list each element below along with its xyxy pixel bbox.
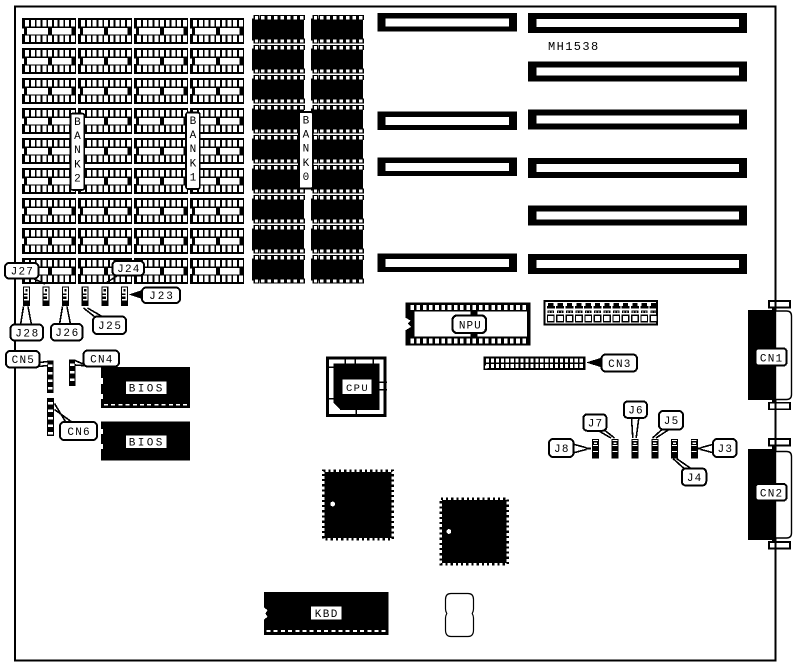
svg-text:A: A bbox=[190, 130, 197, 142]
svg-text:KBD: KBD bbox=[315, 609, 339, 621]
svg-text:J28: J28 bbox=[15, 328, 40, 340]
svg-text:J24: J24 bbox=[117, 264, 140, 276]
svg-text:CN5: CN5 bbox=[12, 355, 35, 367]
svg-text:CPU: CPU bbox=[346, 383, 369, 395]
svg-text:B: B bbox=[303, 115, 310, 127]
svg-text:N: N bbox=[74, 145, 81, 157]
svg-text:CN3: CN3 bbox=[608, 359, 631, 371]
svg-text:J5: J5 bbox=[664, 416, 680, 428]
svg-text:B: B bbox=[74, 117, 81, 129]
svg-text:CN1: CN1 bbox=[760, 354, 783, 366]
svg-text:J3: J3 bbox=[718, 444, 734, 456]
svg-text:J4: J4 bbox=[687, 473, 703, 485]
svg-text:NPU: NPU bbox=[459, 321, 482, 333]
svg-text:MH1538: MH1538 bbox=[548, 40, 600, 54]
svg-text:K: K bbox=[190, 158, 197, 170]
svg-text:J25: J25 bbox=[98, 321, 123, 333]
svg-text:J6: J6 bbox=[628, 405, 644, 417]
svg-text:BIOS: BIOS bbox=[129, 384, 165, 396]
svg-text:CN4: CN4 bbox=[90, 354, 113, 366]
svg-text:BIOS: BIOS bbox=[129, 438, 165, 450]
svg-text:J23: J23 bbox=[149, 291, 175, 303]
svg-text:A: A bbox=[303, 130, 310, 142]
svg-text:K: K bbox=[303, 158, 310, 170]
svg-text:J7: J7 bbox=[588, 418, 604, 430]
svg-text:J27: J27 bbox=[11, 267, 34, 279]
svg-text:CN6: CN6 bbox=[67, 427, 90, 439]
svg-text:1: 1 bbox=[190, 173, 197, 185]
svg-text:0: 0 bbox=[303, 172, 310, 184]
svg-text:CN2: CN2 bbox=[760, 489, 783, 501]
svg-text:B: B bbox=[190, 116, 197, 128]
svg-text:J26: J26 bbox=[55, 328, 80, 340]
svg-text:2: 2 bbox=[74, 174, 81, 186]
svg-text:N: N bbox=[303, 144, 310, 156]
svg-text:N: N bbox=[190, 144, 197, 156]
svg-text:A: A bbox=[74, 131, 81, 143]
svg-text:J8: J8 bbox=[554, 444, 570, 456]
svg-text:K: K bbox=[74, 159, 81, 171]
